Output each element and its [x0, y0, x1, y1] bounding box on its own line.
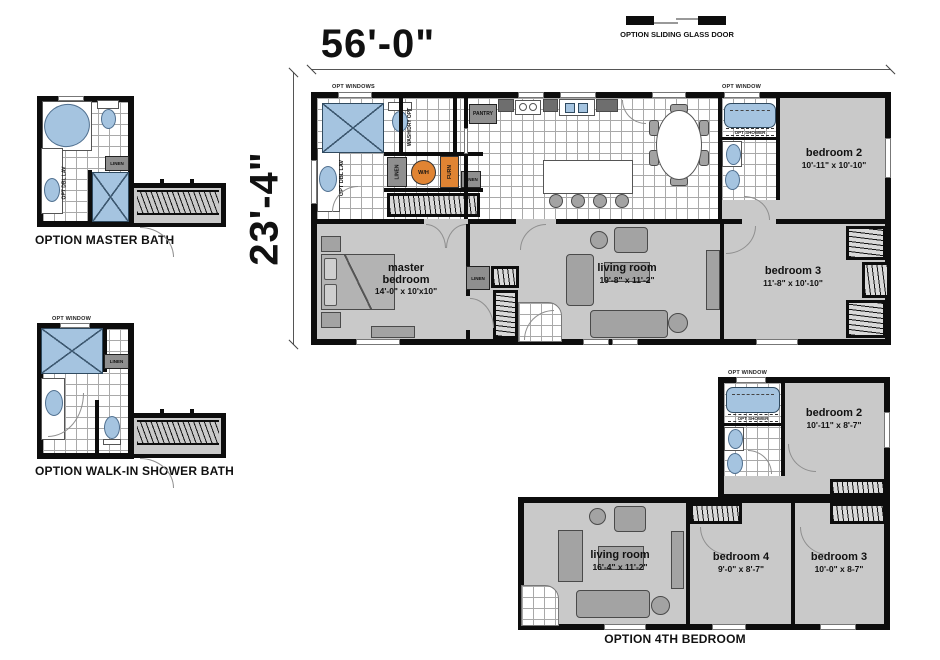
- sliding-door-symbol-left: [626, 16, 654, 25]
- wall: [722, 137, 778, 140]
- sliding-door-symbol-track: [676, 18, 700, 20]
- height-dimension-label: 23'-4": [243, 124, 288, 294]
- wall: [384, 188, 483, 192]
- window: [884, 412, 890, 448]
- master-shower: [322, 103, 384, 153]
- opt-dbl-lav-label: OPT DBL LAV: [58, 152, 70, 214]
- linen-closet: LINEN: [105, 156, 129, 171]
- wall-tick: [160, 409, 164, 418]
- kitchen-cabinet: [498, 99, 514, 112]
- window: [736, 377, 766, 383]
- linen-text: LINEN: [110, 161, 124, 166]
- window: [604, 624, 646, 630]
- tub: [726, 387, 780, 413]
- toilet: [101, 109, 116, 129]
- opt4-bedroom4-name: bedroom 4: [695, 552, 787, 564]
- opt4-bedroom2-dims: 10'-11" x 8'-7": [788, 420, 880, 431]
- living-room-label: living room 19'-8" x 11'-2": [582, 263, 672, 286]
- wall-tick: [160, 179, 164, 188]
- side-table: [589, 508, 606, 525]
- wall: [686, 503, 690, 626]
- wall: [95, 400, 99, 455]
- pillow: [324, 284, 337, 306]
- wall: [453, 98, 457, 155]
- sliding-door-legend-label: OPTION SLIDING GLASS DOOR: [617, 30, 737, 39]
- toilet-tank: [97, 100, 119, 109]
- option-walkin-bath-title: OPTION WALK-IN SHOWER BATH: [35, 464, 234, 478]
- wash-dry-label: WASH/DRY OPT: [404, 100, 416, 154]
- stool: [593, 194, 607, 208]
- window: [724, 92, 760, 98]
- pantry-text: PANTRY: [473, 111, 493, 117]
- kitchen-cabinet: [543, 99, 558, 112]
- hall-closet: [491, 266, 519, 288]
- wall: [384, 152, 483, 156]
- toilet: [727, 453, 743, 474]
- window: [612, 339, 638, 345]
- sofa: [590, 310, 668, 338]
- bedroom2-sink: [726, 144, 741, 165]
- media-unit: [706, 250, 720, 310]
- wall: [88, 170, 92, 222]
- furnace: FURN: [440, 156, 459, 188]
- armchair: [614, 227, 648, 253]
- bedroom4-closet: [690, 503, 742, 524]
- shower: [92, 172, 129, 222]
- opt4-bedroom3-label: bedroom 3 10'-0" x 8-7": [793, 552, 885, 575]
- wash-dry-text: WASH/DRY OPT: [407, 108, 413, 146]
- opt4-bedroom4-dims: 9'-0" x 8'-7": [695, 564, 787, 575]
- window: [560, 92, 596, 98]
- nightstand: [321, 312, 341, 328]
- wall-tick: [190, 179, 194, 188]
- wall: [317, 219, 885, 224]
- closet: [846, 300, 886, 338]
- closet: [846, 226, 886, 260]
- sliding-door-symbol-track: [654, 22, 678, 24]
- armchair: [614, 506, 646, 532]
- entry-floor: [521, 585, 559, 626]
- doorway: [424, 219, 468, 224]
- lav-sink: [319, 166, 337, 192]
- bedroom3-dims: 11'-8" x 10'-10": [748, 278, 838, 289]
- doorway: [516, 219, 556, 224]
- wall: [781, 383, 785, 476]
- opt-window-label: OPT WINDOW: [728, 370, 767, 376]
- burner: [529, 103, 537, 111]
- wall: [720, 224, 724, 339]
- closet: [862, 262, 890, 298]
- linen-text: LINEN: [110, 359, 124, 364]
- sliding-door-symbol-right: [698, 16, 726, 25]
- width-dimension-label: 56'-0": [318, 22, 438, 67]
- width-dimension-line: [311, 69, 891, 70]
- opt-window-label-main: OPT WINDOW: [722, 84, 761, 90]
- dining-table: [656, 110, 702, 180]
- living-room-dims: 19'-8" x 11'-2": [582, 275, 672, 286]
- wall: [464, 98, 468, 222]
- water-heater: W/H: [411, 160, 436, 185]
- opt4-bedroom3-name: bedroom 3: [793, 552, 885, 564]
- height-dimension-line: [293, 72, 294, 345]
- master-bedroom-dims: 14'-0" x 10'x10": [367, 286, 445, 297]
- opt4-bedroom3-dims: 10'-0" x 8-7": [793, 564, 885, 575]
- bedroom2-label: bedroom 2 10'-11" x 10'-10": [788, 148, 880, 171]
- wall: [399, 98, 403, 154]
- stool: [615, 194, 629, 208]
- media-unit: [671, 531, 684, 589]
- walkin-shower: [41, 328, 103, 374]
- toilet-base: [103, 439, 121, 445]
- window: [756, 339, 798, 345]
- stool: [549, 194, 563, 208]
- window: [356, 339, 400, 345]
- side-table: [651, 596, 670, 615]
- kitchen-island: [543, 160, 633, 194]
- wall-tick: [190, 409, 194, 418]
- linen-text: LINEN: [471, 276, 485, 281]
- sink: [728, 429, 743, 449]
- sink-basin: [565, 103, 575, 113]
- opt-shower-label: OPT SHOWER: [728, 414, 778, 422]
- bedroom2-toilet: [725, 170, 740, 190]
- opt4-living-room-label: living room 16'-4" x 11'-2": [575, 550, 665, 573]
- doorway: [464, 128, 468, 154]
- sofa: [576, 590, 650, 618]
- bedroom3-closet: [830, 503, 886, 524]
- toilet: [104, 416, 120, 439]
- opt-dbl-lav-text: OPT DBL LAV: [61, 167, 67, 200]
- linen-closet: LINEN: [466, 266, 490, 290]
- pantry: PANTRY: [469, 104, 497, 124]
- tub-dash: [732, 394, 774, 395]
- window: [338, 92, 372, 98]
- window: [311, 160, 317, 204]
- master-bedroom-label: master bedroom 14'-0" x 10'x10": [367, 263, 445, 297]
- bedroom3-label: bedroom 3 11'-8" x 10'-10": [748, 266, 838, 289]
- closet-rod: [137, 420, 219, 445]
- opt-shower-label: OPT SHOWER: [726, 128, 774, 136]
- bedroom3-name: bedroom 3: [748, 266, 838, 278]
- linen-closet: LINEN: [387, 157, 407, 187]
- window: [712, 624, 746, 630]
- wall: [776, 98, 780, 200]
- closet-rod: [137, 190, 219, 215]
- sink-basin: [578, 103, 588, 113]
- window: [885, 138, 891, 178]
- burner: [519, 103, 527, 111]
- window: [652, 92, 686, 98]
- closet: [830, 479, 886, 496]
- window: [58, 96, 84, 101]
- kitchen-cabinet: [596, 99, 618, 112]
- bedroom2-name: bedroom 2: [788, 148, 880, 160]
- nightstand: [321, 236, 341, 252]
- linen-closet: LINEN: [104, 354, 129, 369]
- bedroom2-tub: [724, 103, 776, 128]
- window: [820, 624, 856, 630]
- master-bedroom-name: master bedroom: [378, 263, 434, 286]
- opt4-living-room-name: living room: [575, 550, 665, 562]
- floor-plan-canvas: 56'-0" OPTION SLIDING GLASS DOOR 23'-4" …: [0, 0, 940, 660]
- window: [518, 92, 544, 98]
- window: [583, 339, 609, 345]
- side-table: [668, 313, 688, 333]
- hall-closet: [493, 290, 518, 339]
- door-swing: [140, 458, 174, 488]
- linen-text: LINEN: [394, 165, 400, 180]
- opt4-bedroom2-label: bedroom 2 10'-11" x 8'-7": [788, 408, 880, 431]
- wh-text: W/H: [418, 170, 429, 176]
- side-table: [590, 231, 608, 249]
- stool: [571, 194, 585, 208]
- door-swing: [140, 227, 174, 257]
- wall: [718, 98, 722, 222]
- furn-text: FURN: [446, 165, 452, 179]
- living-room-name: living room: [582, 263, 672, 275]
- opt-windows-label: OPT WINDOWS: [332, 84, 375, 90]
- dresser: [371, 326, 415, 338]
- window: [60, 323, 90, 328]
- option-4th-bedroom-title: OPTION 4TH BEDROOM: [595, 632, 755, 646]
- opt4-bedroom2-name: bedroom 2: [788, 408, 880, 420]
- opt-window-label: OPT WINDOW: [52, 316, 91, 322]
- bedroom2-dims: 10'-11" x 10'-10": [788, 160, 880, 171]
- tub-dash: [730, 110, 770, 111]
- opt4-living-room-dims: 16'-4" x 11'-2": [575, 562, 665, 573]
- pillow: [324, 258, 337, 280]
- wall: [724, 423, 782, 426]
- opt4-bedroom4-label: bedroom 4 9'-0" x 8'-7": [695, 552, 787, 575]
